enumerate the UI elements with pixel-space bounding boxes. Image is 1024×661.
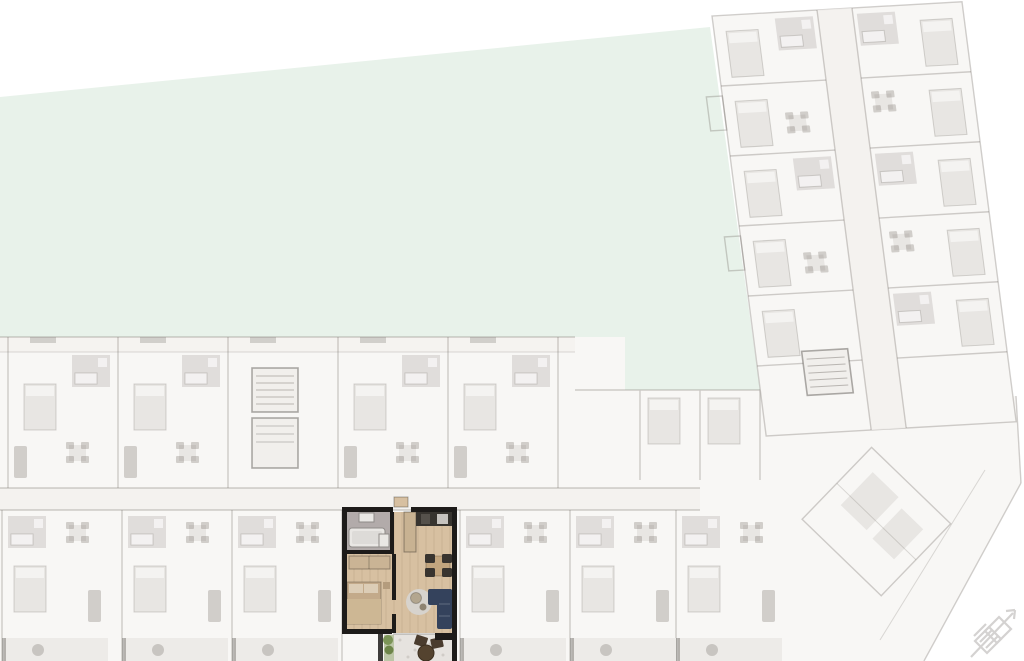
stair-core [252,368,298,468]
chair [442,554,452,563]
floor-plan-page [0,0,1024,661]
chair [425,568,435,577]
pillow [349,584,363,593]
entrance-door [394,497,408,507]
coffee-table [411,593,422,604]
pillow [364,584,378,593]
stove [421,514,430,524]
nightstand [383,582,390,589]
chair [442,568,452,577]
chair [425,554,435,563]
toilet [379,534,389,547]
floor-plan-canvas [0,0,1024,661]
sofa-chaise [437,589,452,629]
outdoor-table [418,645,434,661]
dining-area [425,554,452,577]
blanket [347,599,381,624]
kitchen-sink [437,514,448,524]
plant [383,635,393,645]
plant [385,646,394,655]
side-table [420,604,427,611]
sink [359,513,374,522]
kitchen-cabinet [404,512,416,552]
